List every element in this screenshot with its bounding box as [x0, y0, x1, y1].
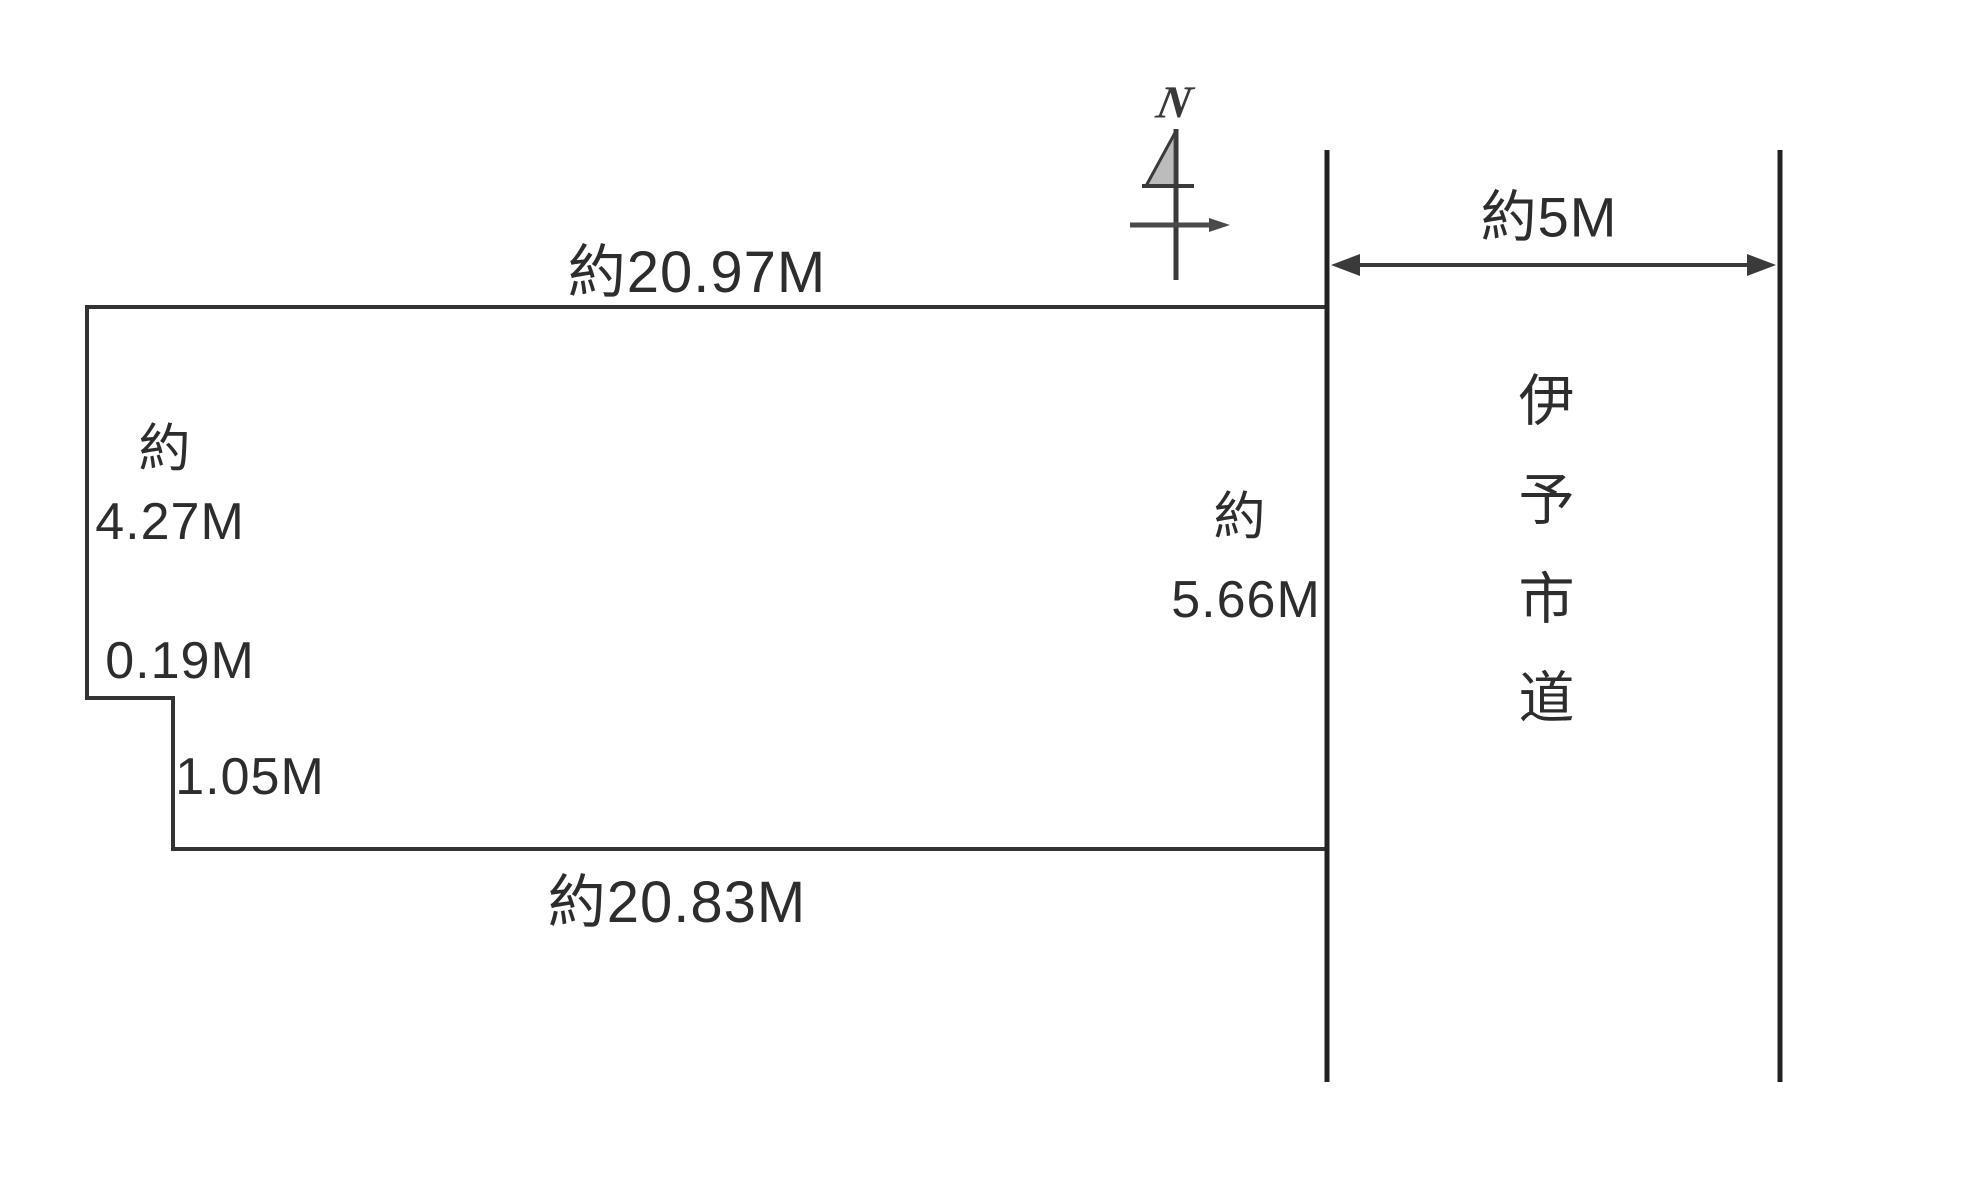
- north-arrow-crossbar-tip: [1209, 218, 1230, 232]
- north-arrow-icon: [1130, 129, 1230, 280]
- dimension-label-notch-step: 0.19M: [105, 631, 255, 691]
- dimension-label-notch-depth: 1.05M: [175, 747, 325, 807]
- road-width-arrow: [1331, 254, 1776, 276]
- road-width-arrow-right-head-icon: [1747, 254, 1776, 276]
- north-arrow-flag: [1146, 131, 1176, 186]
- road-name-vertical-label: 伊予市道: [1514, 371, 1570, 767]
- dimension-label-right-approx: 約: [1213, 475, 1266, 550]
- road-width-arrow-left-head-icon: [1331, 254, 1360, 276]
- dimension-label-left-approx: 約: [138, 407, 191, 482]
- land-survey-diagram: N 約20.97M 約20.83M 約5M 約 4.27M 0.19M 1.05…: [0, 0, 1965, 1201]
- dimension-label-road-width: 約5M: [1481, 173, 1618, 254]
- dimension-label-bottom-edge: 約20.83M: [548, 855, 806, 939]
- diagram-linework: [0, 0, 1965, 1201]
- dimension-label-top-edge: 約20.97M: [568, 225, 826, 309]
- dimension-label-left-value: 4.27M: [95, 492, 245, 552]
- dimension-label-right-value: 5.66M: [1171, 570, 1321, 630]
